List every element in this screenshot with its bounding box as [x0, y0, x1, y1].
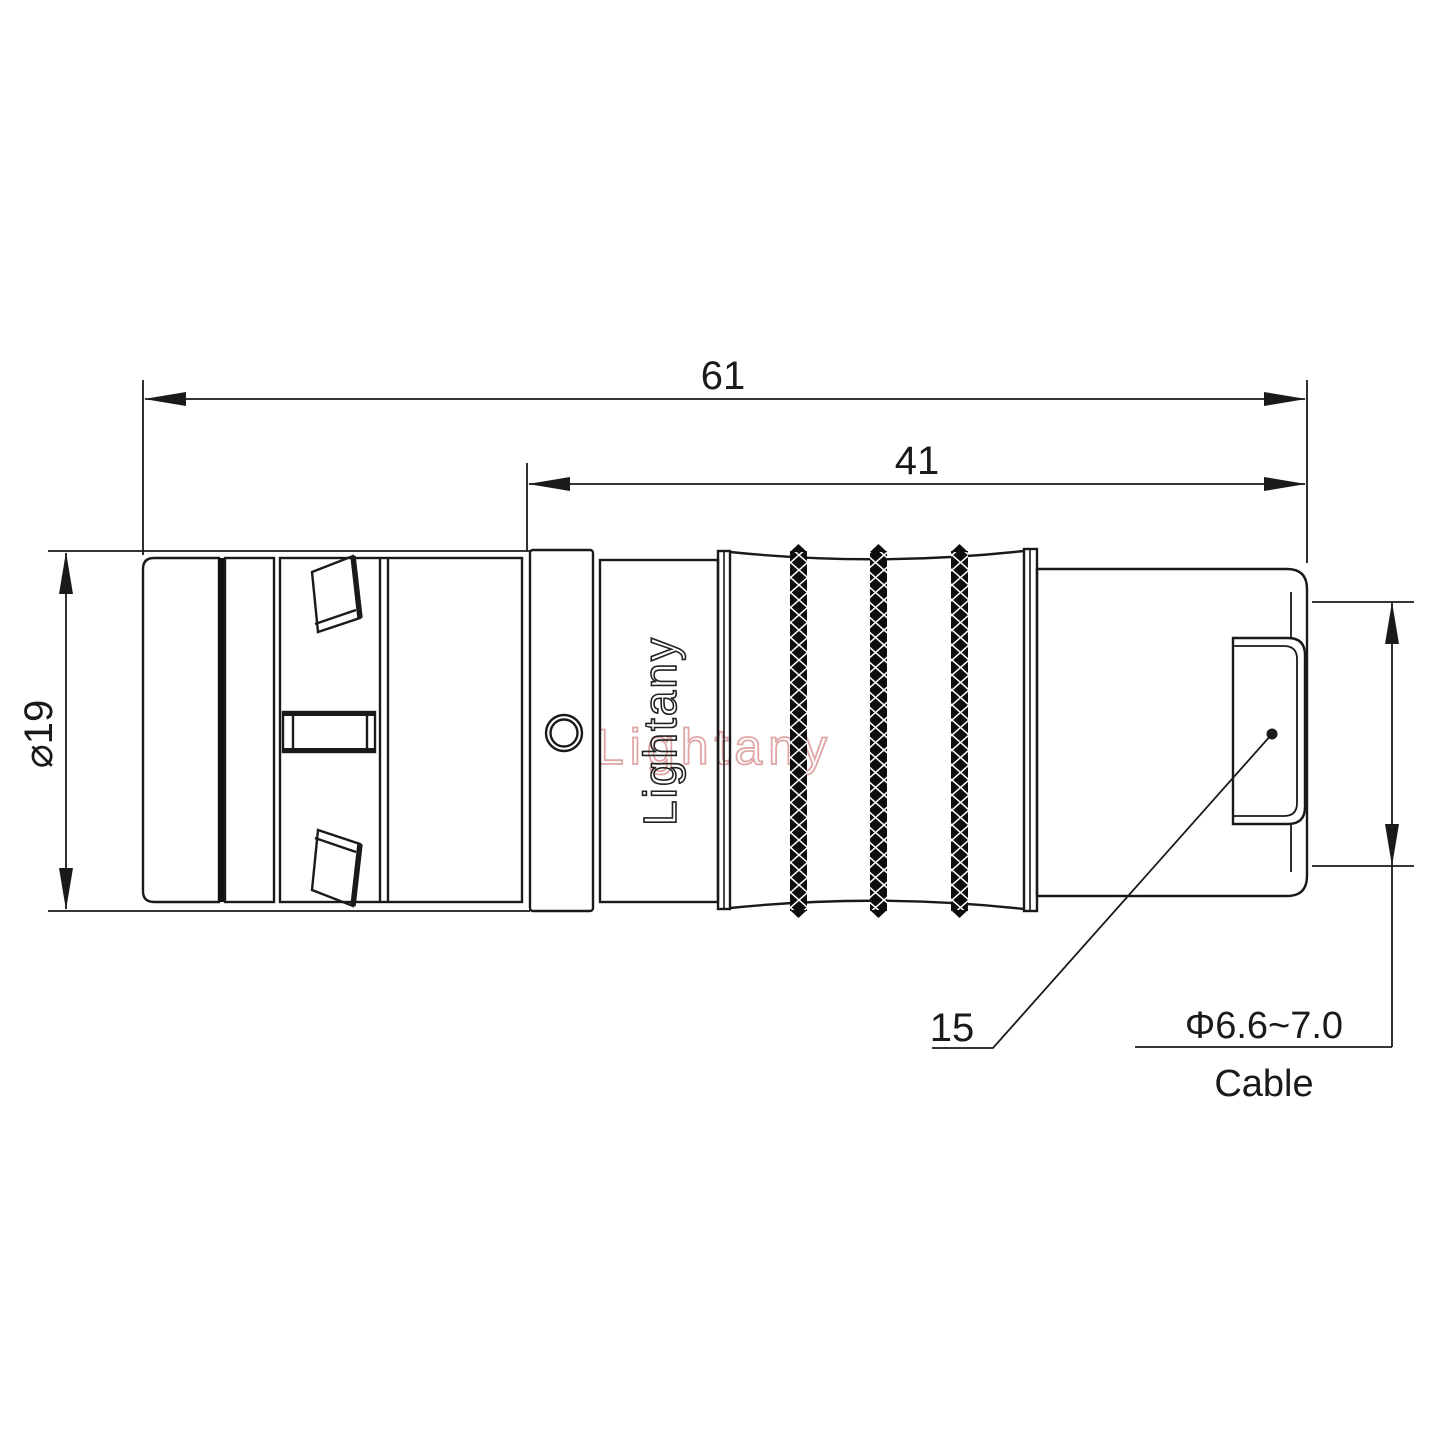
knurl-band-3: [951, 551, 968, 911]
dia19-value: ⌀19: [17, 700, 61, 769]
technical-drawing-canvas: Lightany 61 41 ⌀19 Φ6.6~7.0 Cable: [0, 0, 1440, 1440]
cable-label: Cable: [1214, 1063, 1313, 1105]
cable-diameter-value: Φ6.6~7.0: [1185, 1005, 1343, 1047]
brand-engraving: Lightany: [634, 636, 686, 826]
connector-drawing-svg: Lightany 61 41 ⌀19 Φ6.6~7.0 Cable: [0, 0, 1440, 1440]
dim41-value: 41: [895, 439, 940, 483]
dim61-value: 61: [701, 354, 746, 398]
knurl-band-2: [870, 551, 887, 911]
knurl-band-1: [790, 551, 807, 911]
backshell-length-value: 15: [930, 1006, 975, 1050]
